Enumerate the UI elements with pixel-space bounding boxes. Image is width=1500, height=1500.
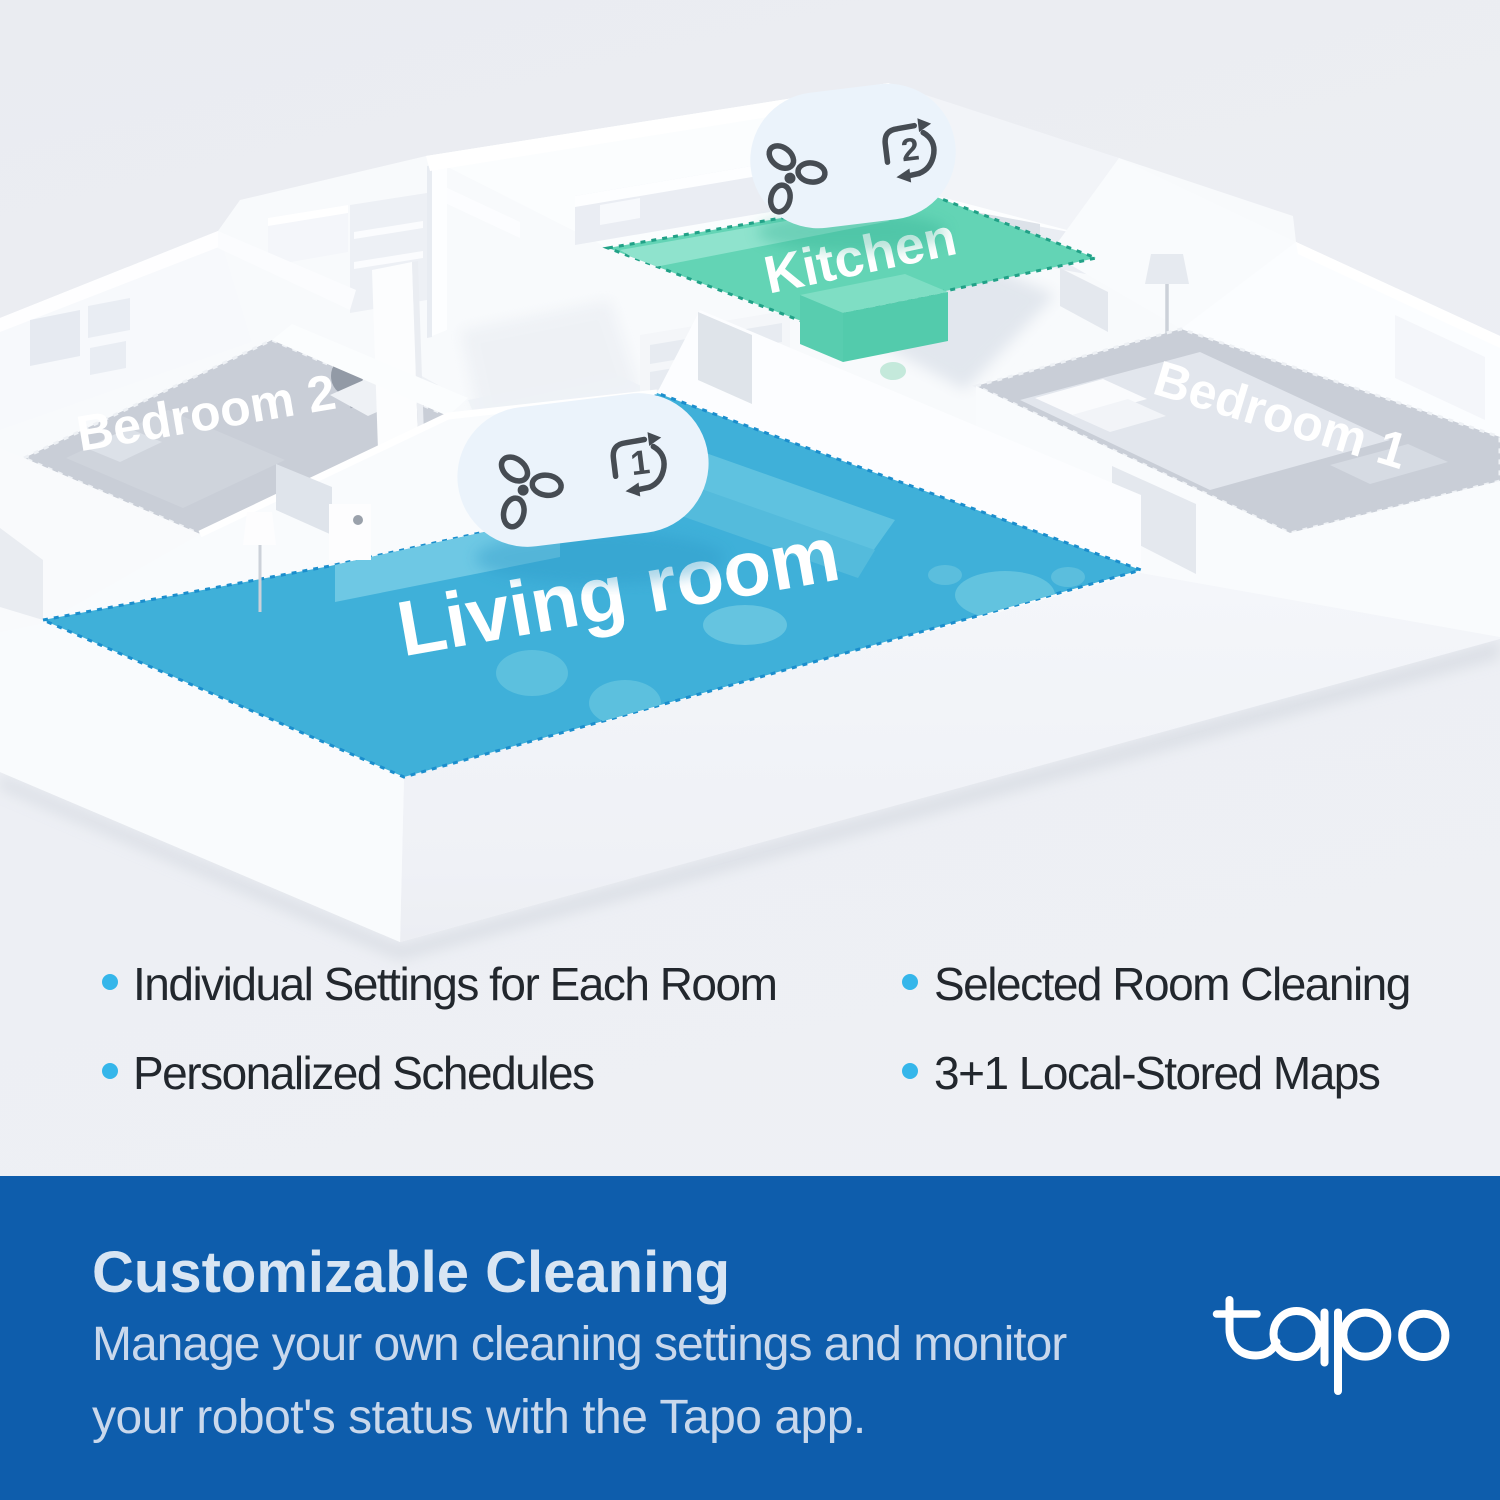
svg-text:Selected Room Cleaning: Selected Room Cleaning <box>934 958 1410 1010</box>
svg-text:Individual Settings for Each R: Individual Settings for Each Room <box>133 958 776 1010</box>
svg-text:Customizable Cleaning: Customizable Cleaning <box>92 1240 730 1305</box>
svg-text:Manage your own cleaning setti: Manage your own cleaning settings and mo… <box>92 1318 1067 1371</box>
svg-text:your robot's status with the T: your robot's status with the Tapo app. <box>92 1391 866 1444</box>
svg-text:Personalized Schedules: Personalized Schedules <box>133 1047 594 1099</box>
svg-text:3+1 Local-Stored Maps: 3+1 Local-Stored Maps <box>934 1047 1380 1099</box>
